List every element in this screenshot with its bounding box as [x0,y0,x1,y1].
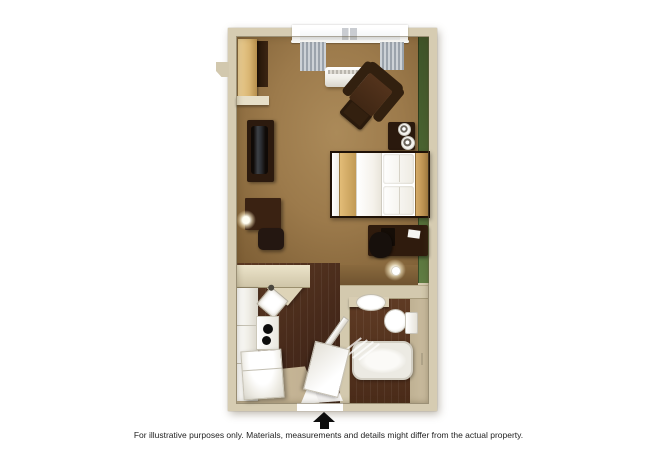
burner [263,324,273,334]
pillow [383,154,414,184]
desk-lamp [236,210,256,230]
toilet-bowl [384,309,407,333]
curtain-right [380,42,404,70]
paper [408,229,421,239]
burner [262,336,271,345]
office-chair [369,232,392,258]
wall-notch [216,62,229,77]
floorplan [228,28,437,411]
desk-chair [258,228,284,250]
table-lamp [398,123,411,136]
pillow [383,186,414,216]
lamp-shade [398,123,411,136]
bed-runner [339,153,356,216]
bed-pillows [381,153,415,216]
bed [330,151,430,218]
refrigerator [240,349,284,401]
towel-hook [421,353,423,365]
bed-duvet [356,153,381,216]
shower-curtain [348,331,376,365]
entry-doorway-opening [297,403,343,411]
shelving-unit [257,41,268,87]
closet-shelf [236,96,269,105]
table-lamp [401,136,415,150]
north-arrow-stem [320,421,329,429]
bathroom-sink [356,294,386,311]
disclaimer-caption: For illustrative purposes only. Material… [0,430,657,440]
main-room-carpet-lower [340,265,418,285]
toilet-tank [405,312,418,334]
kitchen-counter [237,265,310,288]
floor-lamp [391,266,401,276]
wardrobe [238,39,257,97]
lamp-shade [401,136,415,150]
headboard [415,153,428,216]
television [251,126,268,174]
stove-cooktop [256,316,279,350]
curtain-left [300,42,326,71]
bed-foot-sheet [332,153,339,216]
floorplan-image: For illustrative purposes only. Material… [0,0,657,460]
